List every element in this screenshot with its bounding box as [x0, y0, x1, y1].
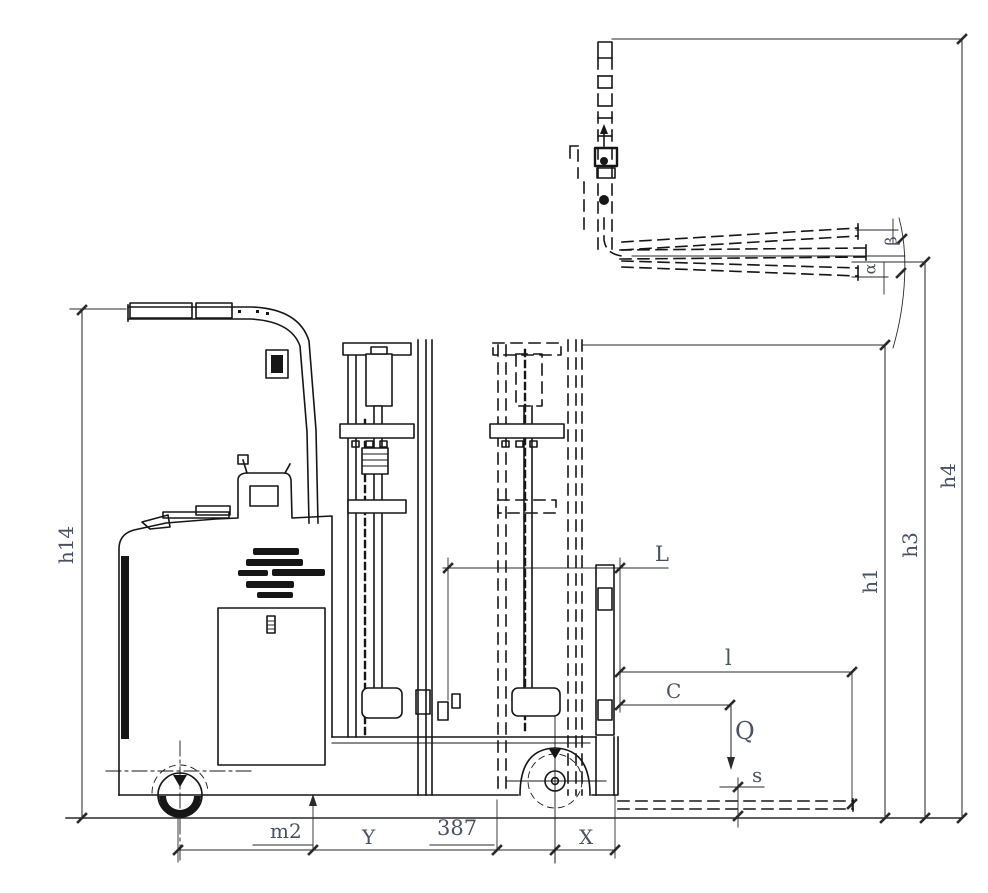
dim-label-m2: m2 [270, 820, 302, 842]
dimension-lines [66, 35, 966, 862]
forks-tilt-range [620, 224, 866, 280]
angle-label-beta: β [881, 236, 903, 245]
dim-label-387: 387 [437, 817, 477, 839]
dim-label-L: L [655, 543, 669, 565]
dim-label-C: C [666, 680, 681, 702]
dim-label-Q: Q [735, 720, 755, 742]
line-drawing [0, 0, 988, 893]
angle-label-alpha: α [859, 264, 881, 275]
dim-label-s: s [752, 764, 762, 786]
steering-console [250, 486, 278, 506]
dim-label-l: l [725, 647, 732, 669]
fork-carriage-lowered [596, 565, 614, 795]
forklift-dimension-drawing: h14 h1 h3 h4 L l C Q s m2 Y 387 X β α [0, 0, 988, 893]
vent-grille [238, 548, 325, 598]
mast-retracted [340, 340, 432, 795]
dim-label-Y: Y [362, 826, 375, 848]
mast-extended-dashed [490, 340, 853, 811]
dim-label-h1: h1 [859, 568, 881, 594]
drive-wheel [106, 741, 252, 863]
dim-label-h14: h14 [55, 526, 77, 564]
dim-label-X: X [579, 826, 593, 848]
dim-label-h4: h4 [937, 463, 959, 489]
dim-label-h3: h3 [899, 532, 921, 558]
mast-raised-dashed [570, 42, 866, 280]
battery-door [218, 608, 325, 765]
chassis-outline [119, 473, 332, 795]
overhead-guard-outer [128, 307, 318, 523]
